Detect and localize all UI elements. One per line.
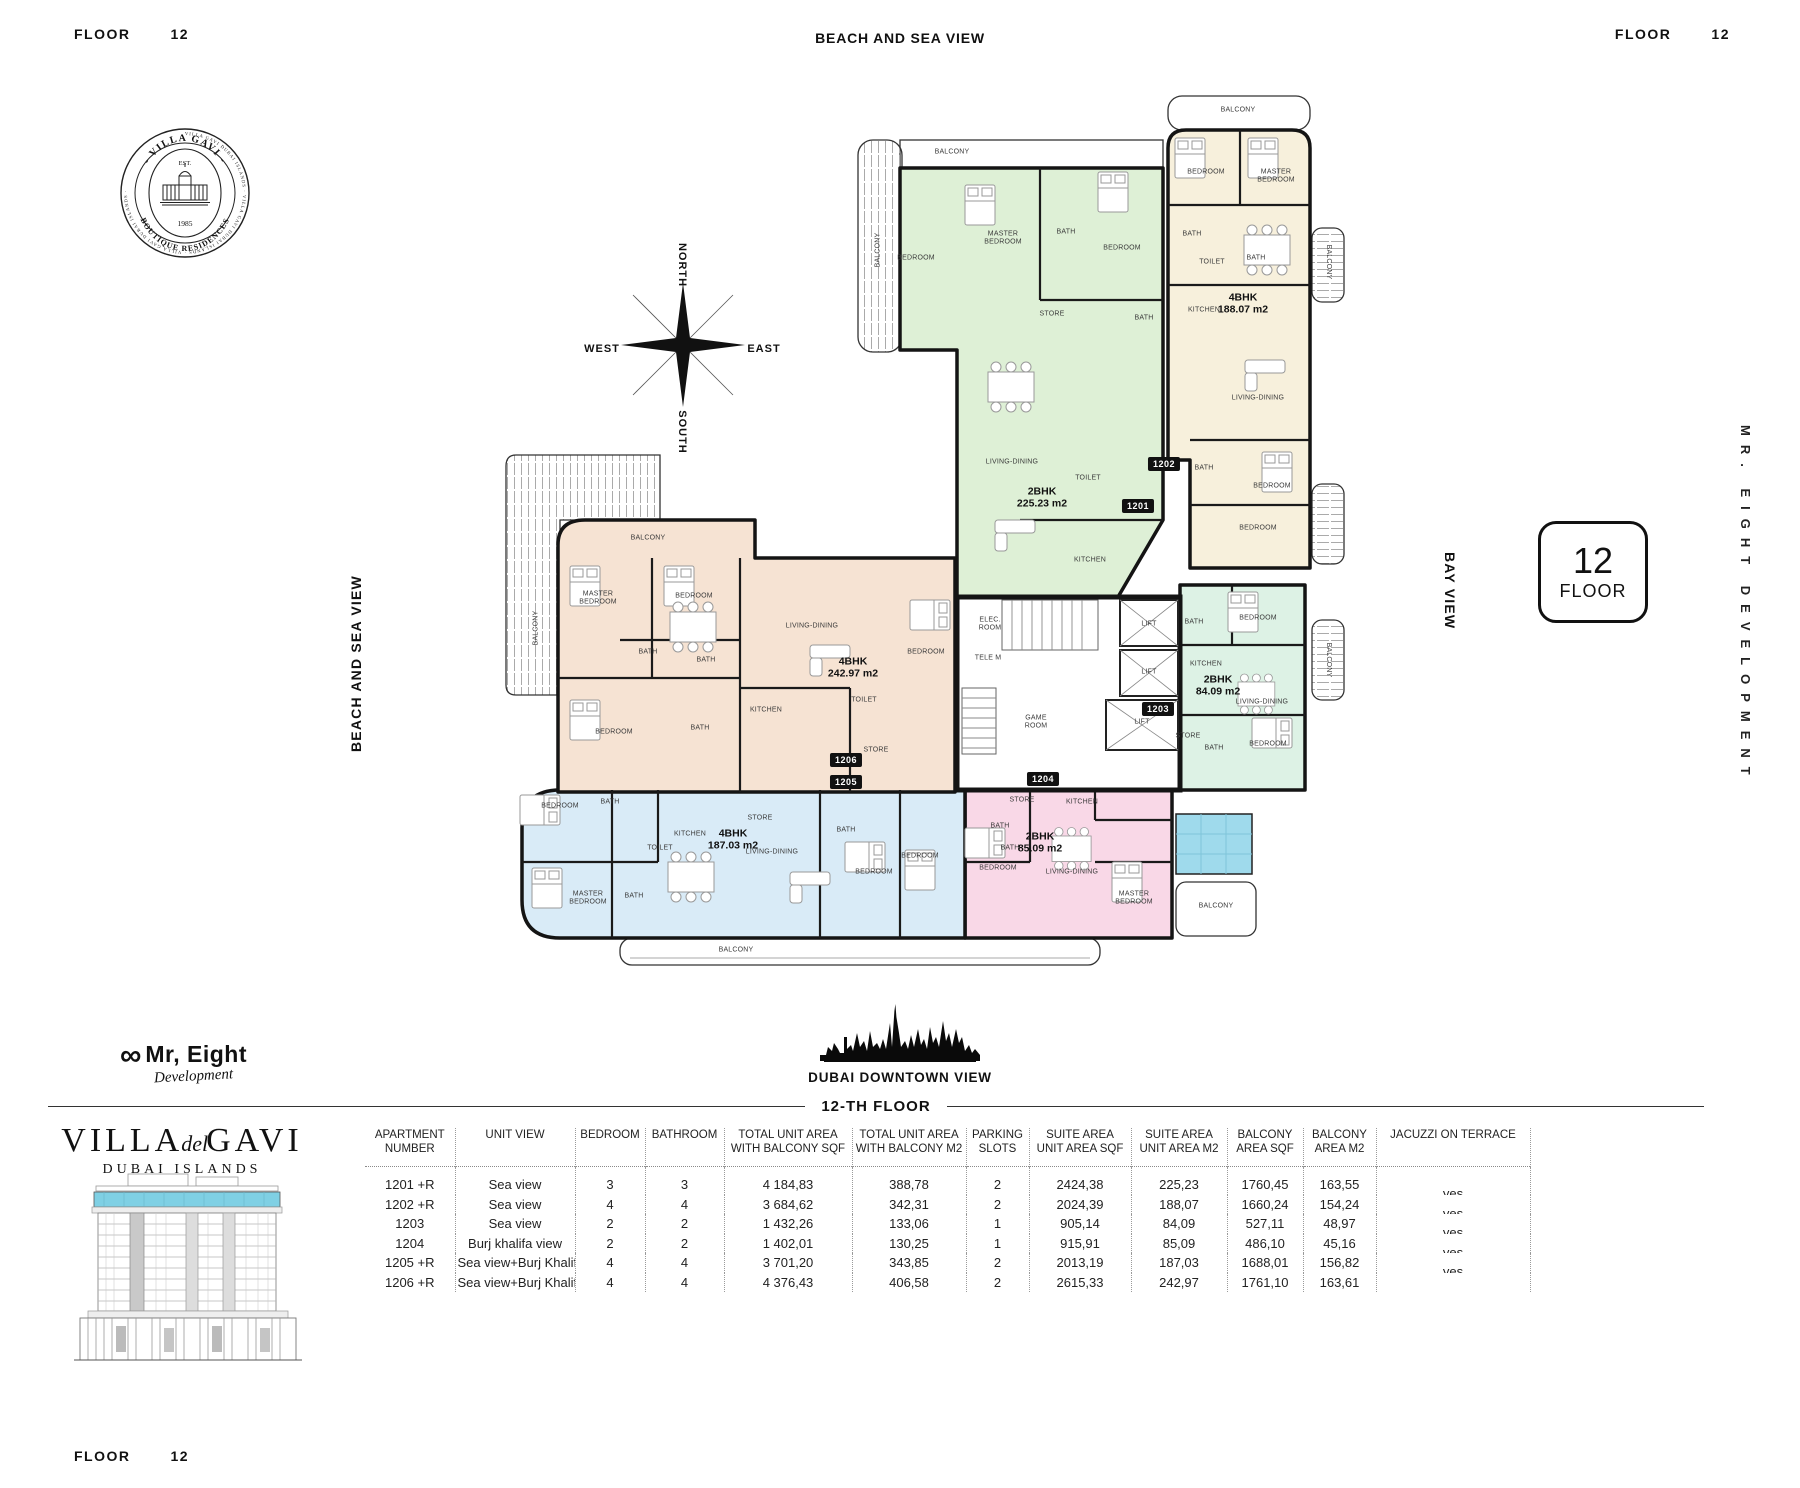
table-column-header: TOTAL UNIT AREA WITH BALCONY M2 xyxy=(852,1128,966,1167)
apartment-cell: 163,61 xyxy=(1303,1273,1376,1293)
apartment-cell: 4 xyxy=(645,1195,724,1215)
divider-line-left xyxy=(48,1106,805,1107)
brand-del: del xyxy=(181,1131,208,1156)
apartment-cell: 486,10 xyxy=(1227,1234,1303,1254)
apartment-cell: 1 402,01 xyxy=(724,1234,852,1254)
apartment-cell: 1206 +R xyxy=(365,1273,455,1293)
apartments-table-wrap: APARTMENT NUMBERUNIT VIEWBEDROOMBATHROOM… xyxy=(365,1128,1531,1292)
apartment-cell: 85,09 xyxy=(1131,1234,1227,1254)
apartment-cell: Sea view+Burj Khalifa xyxy=(455,1253,575,1273)
apartment-cell: Sea view xyxy=(455,1195,575,1215)
apartment-cell: yes xyxy=(1376,1195,1530,1215)
apartment-cell: Sea view xyxy=(455,1167,575,1195)
apartment-cell: 1203 xyxy=(365,1214,455,1234)
apartment-cell: 1761,10 xyxy=(1227,1273,1303,1293)
apartment-cell: 343,85 xyxy=(852,1253,966,1273)
apartment-cell: 188,07 xyxy=(1131,1195,1227,1215)
apartment-cell: 2 xyxy=(966,1273,1029,1293)
building-elevation-illustration xyxy=(68,1168,308,1378)
apartment-cell: 1 xyxy=(966,1234,1029,1254)
apartment-cell: 187,03 xyxy=(1131,1253,1227,1273)
apartment-cell: Sea view+Burj Khalifa xyxy=(455,1273,575,1293)
apartment-cell: 2615,33 xyxy=(1029,1273,1131,1293)
brand-villa: VILLA xyxy=(61,1122,183,1159)
table-column-header: JACUZZI ON TERRACE xyxy=(1376,1128,1530,1167)
apartment-cell: 4 376,43 xyxy=(724,1273,852,1293)
apartment-cell: 1205 +R xyxy=(365,1253,455,1273)
apartment-cell: 225,23 xyxy=(1131,1167,1227,1195)
apartment-cell: yes xyxy=(1376,1167,1530,1195)
apartment-cell: 3 684,62 xyxy=(724,1195,852,1215)
skyline-caption: DUBAI DOWNTOWN VIEW xyxy=(770,1070,1030,1085)
apartment-cell: 915,91 xyxy=(1029,1234,1131,1254)
apartment-cell: 2 xyxy=(575,1234,645,1254)
table-column-header: UNIT VIEW xyxy=(455,1128,575,1167)
divider-label: 12-TH FLOOR xyxy=(821,1098,930,1115)
apartment-cell: yes xyxy=(1376,1214,1530,1234)
apartment-cell: yes xyxy=(1376,1253,1530,1273)
apartment-cell: 3 xyxy=(645,1167,724,1195)
apartment-cell: 84,09 xyxy=(1131,1214,1227,1234)
table-column-header: BALCONY AREA SQF xyxy=(1227,1128,1303,1167)
apartment-cell: 342,31 xyxy=(852,1195,966,1215)
table-column-header: BALCONY AREA M2 xyxy=(1303,1128,1376,1167)
apartment-cell: yes xyxy=(1376,1234,1530,1254)
apartment-cell: 406,58 xyxy=(852,1273,966,1293)
apartment-cell: 133,06 xyxy=(852,1214,966,1234)
apartment-cell: 388,78 xyxy=(852,1167,966,1195)
apartment-cell: 2 xyxy=(966,1167,1029,1195)
infinity-icon: ∞ xyxy=(120,1039,141,1072)
apartment-cell: 3 xyxy=(575,1167,645,1195)
apartment-cell: 4 xyxy=(575,1195,645,1215)
dubai-skyline-icon xyxy=(820,1003,980,1065)
building-core xyxy=(957,597,1180,790)
apartment-cell: 3 701,20 xyxy=(724,1253,852,1273)
apartment-cell: 130,25 xyxy=(852,1234,966,1254)
apartment-cell: 1660,24 xyxy=(1227,1195,1303,1215)
table-column-header: BATHROOM xyxy=(645,1128,724,1167)
apartment-cell: 48,97 xyxy=(1303,1214,1376,1234)
apartment-row: 1201 +RSea view334 184,83388,7822424,382… xyxy=(365,1167,1530,1195)
apartment-cell: 1201 +R xyxy=(365,1167,455,1195)
apartment-cell: 527,11 xyxy=(1227,1214,1303,1234)
apartment-cell: 2 xyxy=(645,1214,724,1234)
apartment-cell: 2 xyxy=(645,1234,724,1254)
apartment-cell: 2 xyxy=(966,1195,1029,1215)
apartment-row: 1204Burj khalifa view221 402,01130,25191… xyxy=(365,1234,1530,1254)
apartment-cell: 1 xyxy=(966,1214,1029,1234)
apartment-row: 1205 +RSea view+Burj Khalifa443 701,2034… xyxy=(365,1253,1530,1273)
apartment-cell: 1760,45 xyxy=(1227,1167,1303,1195)
apartment-cell: 905,14 xyxy=(1029,1214,1131,1234)
apartment-cell: 2 xyxy=(966,1253,1029,1273)
table-column-header: PARKING SLOTS xyxy=(966,1128,1029,1167)
apartment-cell: 2 xyxy=(575,1214,645,1234)
table-column-header: SUITE AREA UNIT AREA M2 xyxy=(1131,1128,1227,1167)
mr-eight-name: Mr, Eight xyxy=(145,1041,247,1067)
mr-eight-logo: ∞Mr, Eight Development xyxy=(120,1044,247,1086)
table-column-header: APARTMENT NUMBER xyxy=(365,1128,455,1167)
apartment-row: 1202 +RSea view443 684,62342,3122024,391… xyxy=(365,1195,1530,1215)
apartment-cell: 45,16 xyxy=(1303,1234,1376,1254)
apartment-cell: Burj khalifa view xyxy=(455,1234,575,1254)
apartment-cell: 4 xyxy=(575,1253,645,1273)
apartment-cell: 4 xyxy=(645,1253,724,1273)
apartment-row: 1206 +RSea view+Burj Khalifa444 376,4340… xyxy=(365,1273,1530,1293)
apartment-cell: 163,55 xyxy=(1303,1167,1376,1195)
apartment-cell: Sea view xyxy=(455,1214,575,1234)
apartment-cell: 4 xyxy=(645,1273,724,1293)
apartments-table: APARTMENT NUMBERUNIT VIEWBEDROOMBATHROOM… xyxy=(365,1128,1531,1292)
terrace-pool xyxy=(1176,814,1252,874)
apartment-cell: 1202 +R xyxy=(365,1195,455,1215)
table-column-header: BEDROOM xyxy=(575,1128,645,1167)
floorplan-page: FLOOR12 BEACH AND SEA VIEW FLOOR12 FLOOR… xyxy=(0,0,1800,1488)
mr-eight-tagline: Development xyxy=(154,1064,248,1089)
apartment-cell: 1688,01 xyxy=(1227,1253,1303,1273)
table-column-header: SUITE AREA UNIT AREA SQF xyxy=(1029,1128,1131,1167)
apartment-row: 1203Sea view221 432,26133,061905,1484,09… xyxy=(365,1214,1530,1234)
apartment-cell: 2024,39 xyxy=(1029,1195,1131,1215)
apartment-cell: 4 xyxy=(575,1273,645,1293)
table-column-header: TOTAL UNIT AREA WITH BALCONY SQF xyxy=(724,1128,852,1167)
apartment-cell: 242,97 xyxy=(1131,1273,1227,1293)
brand-gavi: GAVI xyxy=(206,1122,303,1159)
apartment-cell: 156,82 xyxy=(1303,1253,1376,1273)
table-header-row: APARTMENT NUMBERUNIT VIEWBEDROOMBATHROOM… xyxy=(365,1128,1530,1167)
apartment-cell: 2424,38 xyxy=(1029,1167,1131,1195)
floor-divider: 12-TH FLOOR xyxy=(48,1098,1704,1115)
divider-line-right xyxy=(947,1106,1704,1107)
apartment-cell: 2013,19 xyxy=(1029,1253,1131,1273)
apartment-cell: 1 432,26 xyxy=(724,1214,852,1234)
apartment-cell xyxy=(1376,1273,1530,1293)
apartment-cell: 4 184,83 xyxy=(724,1167,852,1195)
apartment-cell: 1204 xyxy=(365,1234,455,1254)
apartment-cell: 154,24 xyxy=(1303,1195,1376,1215)
